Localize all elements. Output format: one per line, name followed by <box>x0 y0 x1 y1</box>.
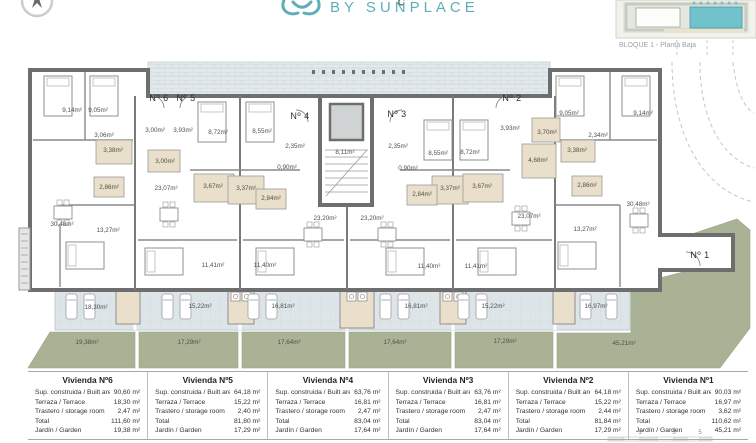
row-value: 81,84 m² <box>594 417 620 427</box>
brand-wordmark: BY SUNPLACE <box>330 0 530 16</box>
row-label: Sup. construida / Built area <box>35 388 110 398</box>
unit-number-label: Nº 3 <box>387 109 406 119</box>
row-value: 19,38 m² <box>114 426 140 436</box>
room-area-label: 3,37m² <box>236 185 256 192</box>
unit-number-label: Nº 6 <box>149 93 168 103</box>
table-row: Total81,84 m² <box>516 417 621 427</box>
unit-number-label: Nº 5 <box>176 93 195 103</box>
row-label: Total <box>35 417 49 427</box>
table-column-vivienda-n-5: Vivienda Nº5Sup. construida / Built area… <box>147 372 267 439</box>
room-area-label: 2,86m² <box>99 184 119 191</box>
room-area-label: 3,00m² <box>155 158 175 165</box>
table-row: Jardín / Garden17,64 m² <box>275 426 380 436</box>
table-row: Terraza / Terrace16,81 m² <box>275 398 380 408</box>
row-label: Total <box>275 417 289 427</box>
table-row: Total110,62 m² <box>636 417 741 427</box>
table-column-header: Vivienda Nº5 <box>155 375 260 385</box>
table-row: Jardín / Garden17,29 m² <box>516 426 621 436</box>
unit-number-label: Nº 2 <box>502 93 521 103</box>
floor-plan-sheet: Nº 6Nº 5Nº 4Nº 3Nº 2Nº 1 9,14m²9,05m²3,0… <box>0 0 756 443</box>
room-area-label: 17,29m² <box>493 338 516 345</box>
table-row: Trastero / storage room2,47 m² <box>396 407 501 417</box>
table-row: Total83,04 m² <box>275 417 380 427</box>
room-area-label: 30,48m² <box>50 221 73 228</box>
room-area-label: 9,05m² <box>88 107 108 114</box>
room-area-label: 13,27m² <box>96 227 119 234</box>
table-row: Terraza / Terrace18,30 m² <box>35 398 140 408</box>
table-row: Sup. construida / Built area63,76 m² <box>275 388 380 398</box>
room-area-label: 15,22m² <box>188 303 211 310</box>
row-label: Jardín / Garden <box>516 426 562 436</box>
row-label: Sup. construida / Built area <box>396 388 471 398</box>
row-value: 2,40 m² <box>238 407 261 417</box>
row-label: Total <box>396 417 410 427</box>
row-label: Terraza / Terrace <box>275 398 325 408</box>
room-area-label: 2,34m² <box>588 132 608 139</box>
table-row: Trastero / storage room2,47 m² <box>275 407 380 417</box>
table-column-header: Vivienda Nº6 <box>35 375 140 385</box>
row-label: Jardín / Garden <box>155 426 201 436</box>
site-keymap <box>616 0 756 58</box>
table-row: Jardín / Garden17,29 m² <box>155 426 260 436</box>
room-area-label: 3,06m² <box>94 132 114 139</box>
room-area-label: 8,11m² <box>335 149 354 156</box>
row-value: 110,62 m² <box>711 417 741 427</box>
room-area-label: 3,93m² <box>173 127 193 134</box>
row-label: Jardín / Garden <box>35 426 81 436</box>
row-label: Terraza / Terrace <box>396 398 446 408</box>
table-column-header: Vivienda Nº2 <box>516 375 621 385</box>
row-label: Terraza / Terrace <box>516 398 566 408</box>
table-row: Trastero / storage room2,40 m² <box>155 407 260 417</box>
unit-number-label: Nº 4 <box>290 111 309 121</box>
row-value: 15,22 m² <box>234 398 260 408</box>
row-value: 17,64 m² <box>354 426 380 436</box>
garden-paths <box>672 62 754 202</box>
row-label: Sup. construida / Built area <box>516 388 591 398</box>
keymap-caption: BLOQUE 1 - Planta Baja <box>619 42 755 49</box>
row-value: 83,04 m² <box>354 417 380 427</box>
room-area-label: 2,84m² <box>261 195 281 202</box>
room-area-label: 18,30m² <box>84 304 107 311</box>
table-row: Terraza / Terrace15,22 m² <box>155 398 260 408</box>
row-label: Trastero / storage room <box>516 407 586 417</box>
row-label: Terraza / Terrace <box>35 398 85 408</box>
access-walkway <box>148 62 550 96</box>
room-area-label: 0,90m² <box>398 165 418 172</box>
room-area-label: 9,14m² <box>62 107 82 114</box>
row-label: Trastero / storage room <box>35 407 105 417</box>
room-area-label: 2,84m² <box>412 191 432 198</box>
room-area-label: 3,67m² <box>472 183 492 190</box>
room-area-label: 23,07m² <box>517 213 540 220</box>
table-column-vivienda-n-3: Vivienda Nº3Sup. construida / Built area… <box>388 372 508 439</box>
table-row: Sup. construida / Built area90,60 m² <box>35 388 140 398</box>
row-label: Sup. construida / Built area <box>275 388 350 398</box>
room-area-label: 11,40m² <box>254 262 277 269</box>
row-label: Jardín / Garden <box>396 426 442 436</box>
row-label: Total <box>516 417 530 427</box>
row-value: 17,64 m² <box>474 426 500 436</box>
row-value: 2,47 m² <box>118 407 141 417</box>
room-area-label: 23,20m² <box>313 215 336 222</box>
row-label: Sup. construida / Built area <box>636 388 711 398</box>
room-area-label: 15,22m² <box>481 303 504 310</box>
room-area-label: 9,05m² <box>559 110 579 117</box>
room-area-label: 3,00m² <box>145 127 165 134</box>
table-row: Sup. construida / Built area64,18 m² <box>516 388 621 398</box>
row-value: 83,04 m² <box>474 417 500 427</box>
room-area-label: 16,81m² <box>271 303 294 310</box>
table-row: Sup. construida / Built area64,18 m² <box>155 388 260 398</box>
table-row: Sup. construida / Built area63,76 m² <box>396 388 501 398</box>
row-value: 18,30 m² <box>114 398 140 408</box>
room-area-label: 9,14m² <box>633 110 653 117</box>
room-area-label: 3,37m² <box>440 185 460 192</box>
row-label: Trastero / storage room <box>396 407 466 417</box>
table-row: Terraza / Terrace16,81 m² <box>396 398 501 408</box>
row-label: Sup. construida / Built area <box>155 388 230 398</box>
row-label: Trastero / storage room <box>155 407 225 417</box>
room-area-label: 8,55m² <box>428 150 448 157</box>
row-value: 90,60 m² <box>114 388 140 398</box>
table-row: Jardín / Garden19,38 m² <box>35 426 140 436</box>
room-area-label: 13,27m² <box>573 226 596 233</box>
table-column-vivienda-n-2: Vivienda Nº2Sup. construida / Built area… <box>508 372 628 439</box>
row-value: 2,44 m² <box>598 407 621 417</box>
row-value: 111,60 m² <box>111 417 140 427</box>
table-row: Jardín / Garden45,21 m² <box>636 426 741 436</box>
table-column-vivienda-n-6: Vivienda Nº6Sup. construida / Built area… <box>28 372 147 439</box>
row-value: 64,18 m² <box>594 388 620 398</box>
room-area-label: 30,48m² <box>626 201 649 208</box>
row-label: Total <box>636 417 650 427</box>
row-value: 45,21 m² <box>715 426 741 436</box>
table-row: Sup. construida / Built area90,03 m² <box>636 388 741 398</box>
room-area-label: 8,72m² <box>208 129 228 136</box>
row-label: Terraza / Terrace <box>636 398 686 408</box>
table-row: Total81,80 m² <box>155 417 260 427</box>
room-area-label: 2,35m² <box>388 143 408 150</box>
room-area-label: 3,38m² <box>567 147 587 154</box>
row-label: Trastero / storage room <box>636 407 706 417</box>
row-value: 64,18 m² <box>234 388 260 398</box>
room-area-label: 23,07m² <box>154 185 177 192</box>
row-value: 81,80 m² <box>234 417 260 427</box>
room-area-label: 19,38m² <box>75 339 98 346</box>
table-row: Total111,60 m² <box>35 417 140 427</box>
room-area-label: 2,35m² <box>285 143 305 150</box>
table-column-header: Vivienda Nº1 <box>636 375 741 385</box>
room-area-label: 0,90m² <box>277 164 297 171</box>
unit-number-label: Nº 1 <box>690 250 709 260</box>
table-column-vivienda-n-1: Vivienda Nº1Sup. construida / Built area… <box>628 372 748 439</box>
room-area-label: 16,81m² <box>404 303 427 310</box>
row-label: Total <box>155 417 169 427</box>
row-value: 17,29 m² <box>234 426 260 436</box>
row-value: 63,76 m² <box>354 388 380 398</box>
row-value: 2,47 m² <box>478 407 501 417</box>
north-arrow-icon <box>22 0 52 16</box>
row-value: 16,97 m² <box>715 398 741 408</box>
row-value: 90,03 m² <box>715 388 741 398</box>
table-row: Total83,04 m² <box>396 417 501 427</box>
room-area-label: 11,41m² <box>202 262 225 269</box>
table-row: Trastero / storage room2,44 m² <box>516 407 621 417</box>
row-value: 17,29 m² <box>594 426 620 436</box>
room-area-label: 3,38m² <box>103 147 123 154</box>
room-area-label: 8,55m² <box>252 128 272 135</box>
table-row: Terraza / Terrace16,97 m² <box>636 398 741 408</box>
row-value: 16,81 m² <box>354 398 380 408</box>
room-area-label: 11,40m² <box>418 263 441 270</box>
row-value: 16,81 m² <box>474 398 500 408</box>
room-area-label: 23,20m² <box>360 215 383 222</box>
row-value: 2,47 m² <box>358 407 381 417</box>
row-label: Jardín / Garden <box>636 426 682 436</box>
table-column-header: Vivienda Nº4 <box>275 375 380 385</box>
row-label: Jardín / Garden <box>275 426 321 436</box>
room-area-label: 17,29m² <box>177 339 200 346</box>
room-area-label: 2,86m² <box>577 182 597 189</box>
table-column-header: Vivienda Nº3 <box>396 375 501 385</box>
table-row: Trastero / storage room2,47 m² <box>35 407 140 417</box>
room-area-label: 3,93m² <box>500 125 520 132</box>
room-area-label: 3,70m² <box>537 129 557 136</box>
row-label: Terraza / Terrace <box>155 398 205 408</box>
room-area-label: 17,64m² <box>277 339 300 346</box>
table-row: Trastero / storage room3,62 m² <box>636 407 741 417</box>
room-area-label: 45,21m² <box>612 340 635 347</box>
room-area-label: 17,64m² <box>383 339 406 346</box>
room-area-label: 3,67m² <box>203 183 223 190</box>
room-area-label: 4,68m² <box>528 157 548 164</box>
area-summary-table: Vivienda Nº6Sup. construida / Built area… <box>28 371 748 440</box>
table-row: Terraza / Terrace15,22 m² <box>516 398 621 408</box>
room-area-label: 8,72m² <box>460 149 480 156</box>
table-column-vivienda-n-4: Vivienda Nº4Sup. construida / Built area… <box>267 372 387 439</box>
row-value: 63,76 m² <box>474 388 500 398</box>
row-value: 15,22 m² <box>594 398 620 408</box>
room-area-label: 11,41m² <box>465 263 488 270</box>
table-row: Jardín / Garden17,64 m² <box>396 426 501 436</box>
room-area-label: 16,97m² <box>584 303 607 310</box>
row-label: Trastero / storage room <box>275 407 345 417</box>
row-value: 3,62 m² <box>718 407 741 417</box>
